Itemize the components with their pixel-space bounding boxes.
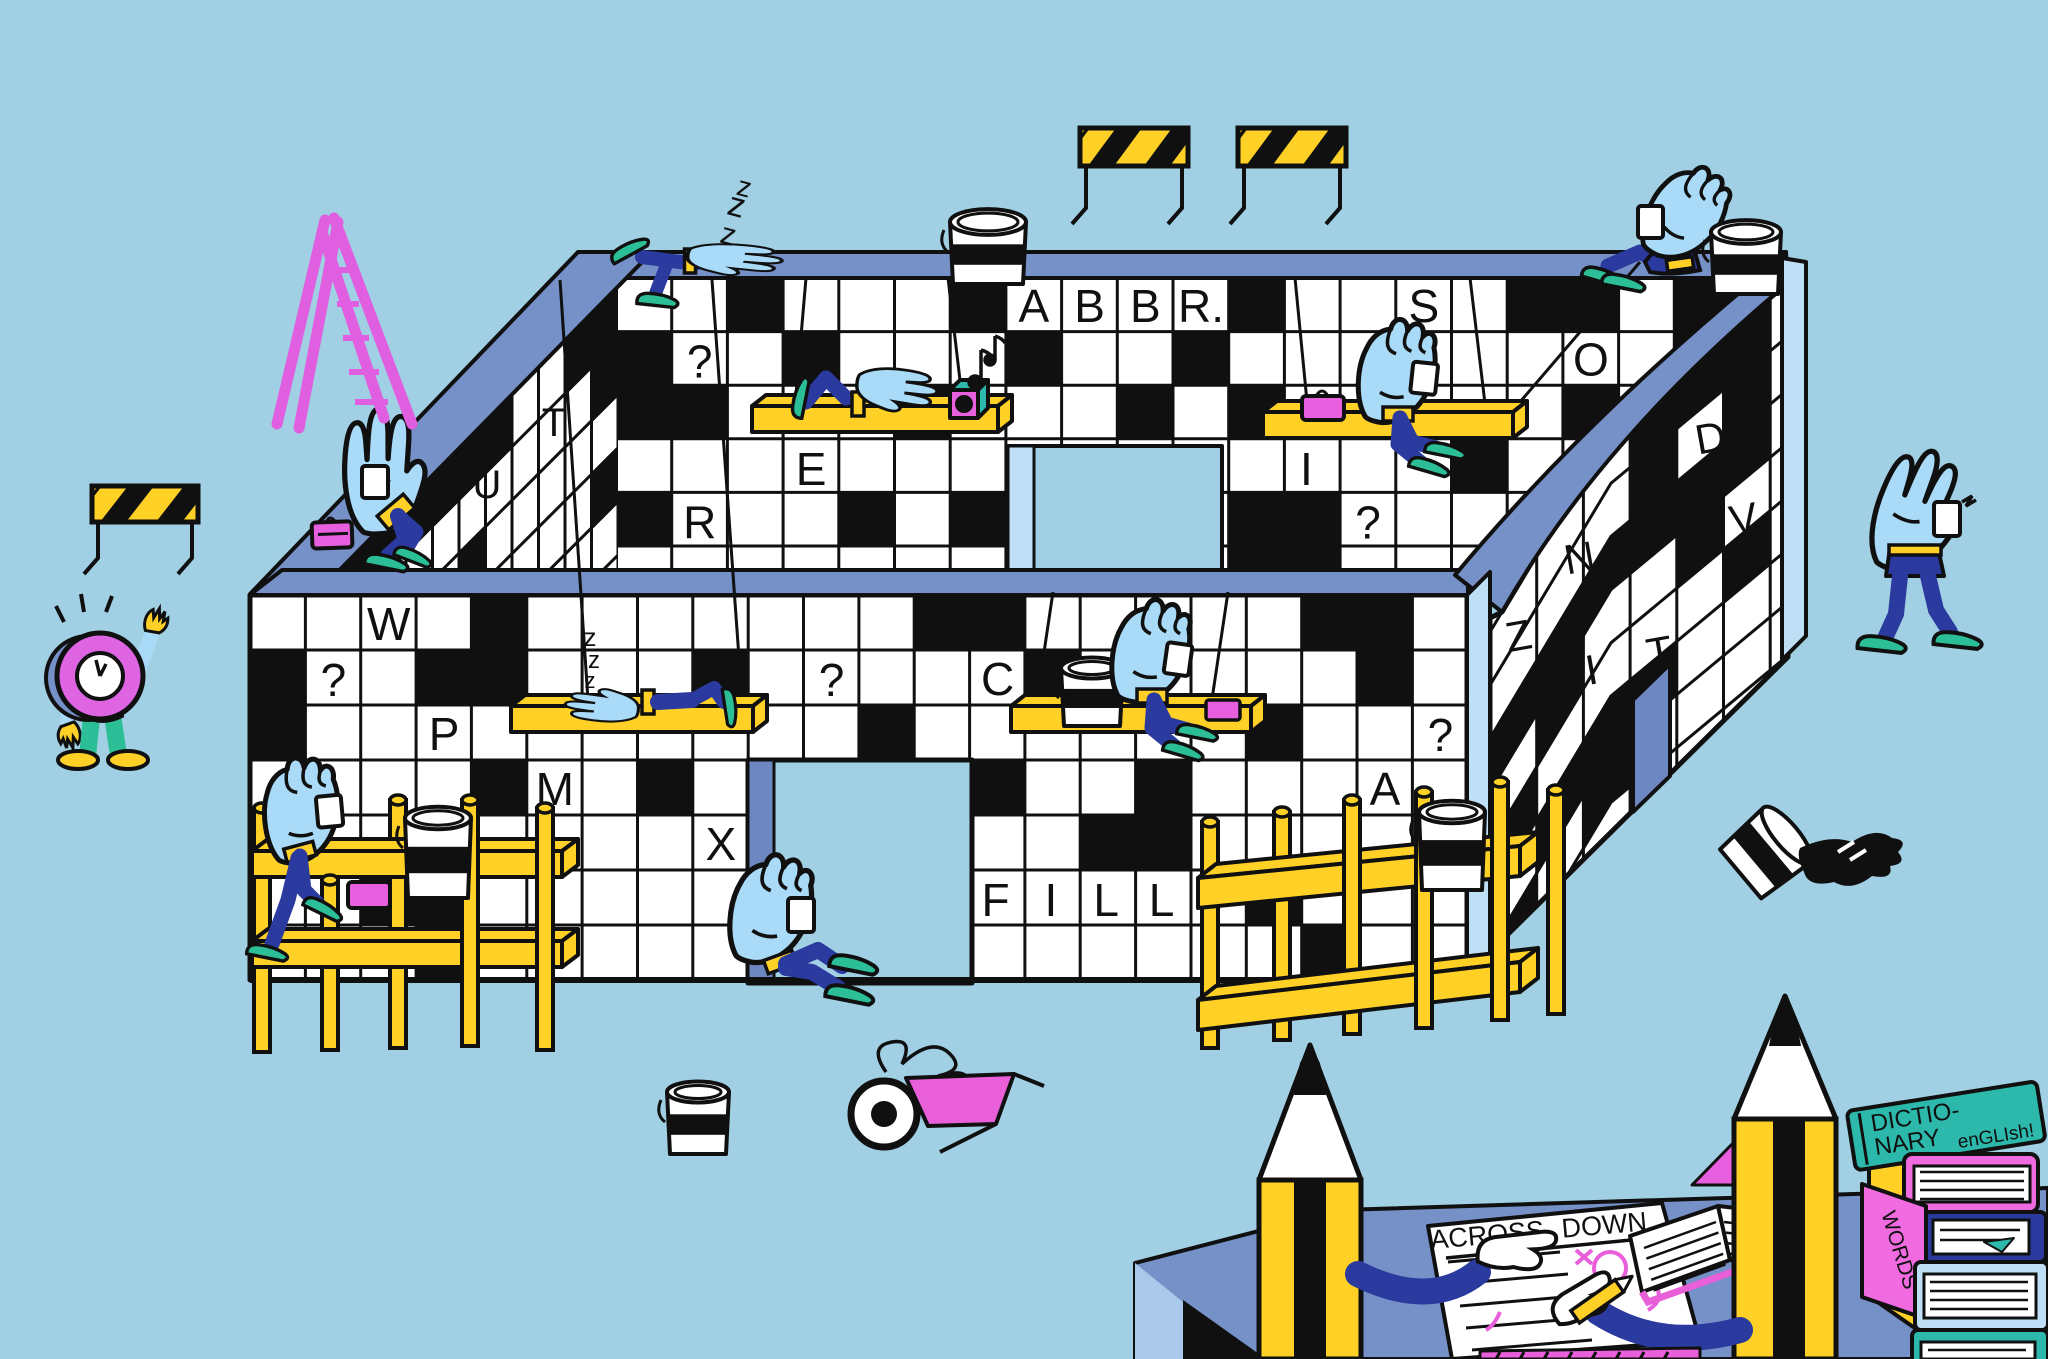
svg-text:F: F — [982, 874, 1010, 926]
svg-text:I: I — [1045, 874, 1058, 926]
svg-text:B: B — [1130, 280, 1161, 332]
svg-text:T: T — [542, 401, 566, 445]
svg-text:A: A — [1370, 763, 1401, 815]
svg-text:?: ? — [1355, 496, 1381, 548]
svg-text:P: P — [429, 708, 460, 760]
svg-text:A: A — [1019, 280, 1050, 332]
svg-text:E: E — [796, 443, 827, 495]
svg-text:z: z — [585, 668, 596, 693]
svg-text:W: W — [367, 598, 411, 650]
svg-text:?: ? — [1428, 709, 1454, 761]
svg-text:O: O — [1573, 334, 1609, 386]
svg-text:C: C — [981, 653, 1014, 705]
svg-text:?: ? — [819, 654, 845, 706]
svg-text:B: B — [1074, 280, 1105, 332]
svg-text:R: R — [683, 496, 716, 548]
svg-text:L: L — [1149, 874, 1175, 926]
svg-text:L: L — [1093, 874, 1119, 926]
svg-text:?: ? — [687, 336, 713, 388]
svg-text:R.: R. — [1178, 280, 1224, 332]
svg-text:I: I — [1300, 443, 1313, 495]
svg-text:U: U — [473, 463, 502, 507]
svg-text:?: ? — [321, 654, 347, 706]
svg-text:X: X — [705, 818, 736, 870]
